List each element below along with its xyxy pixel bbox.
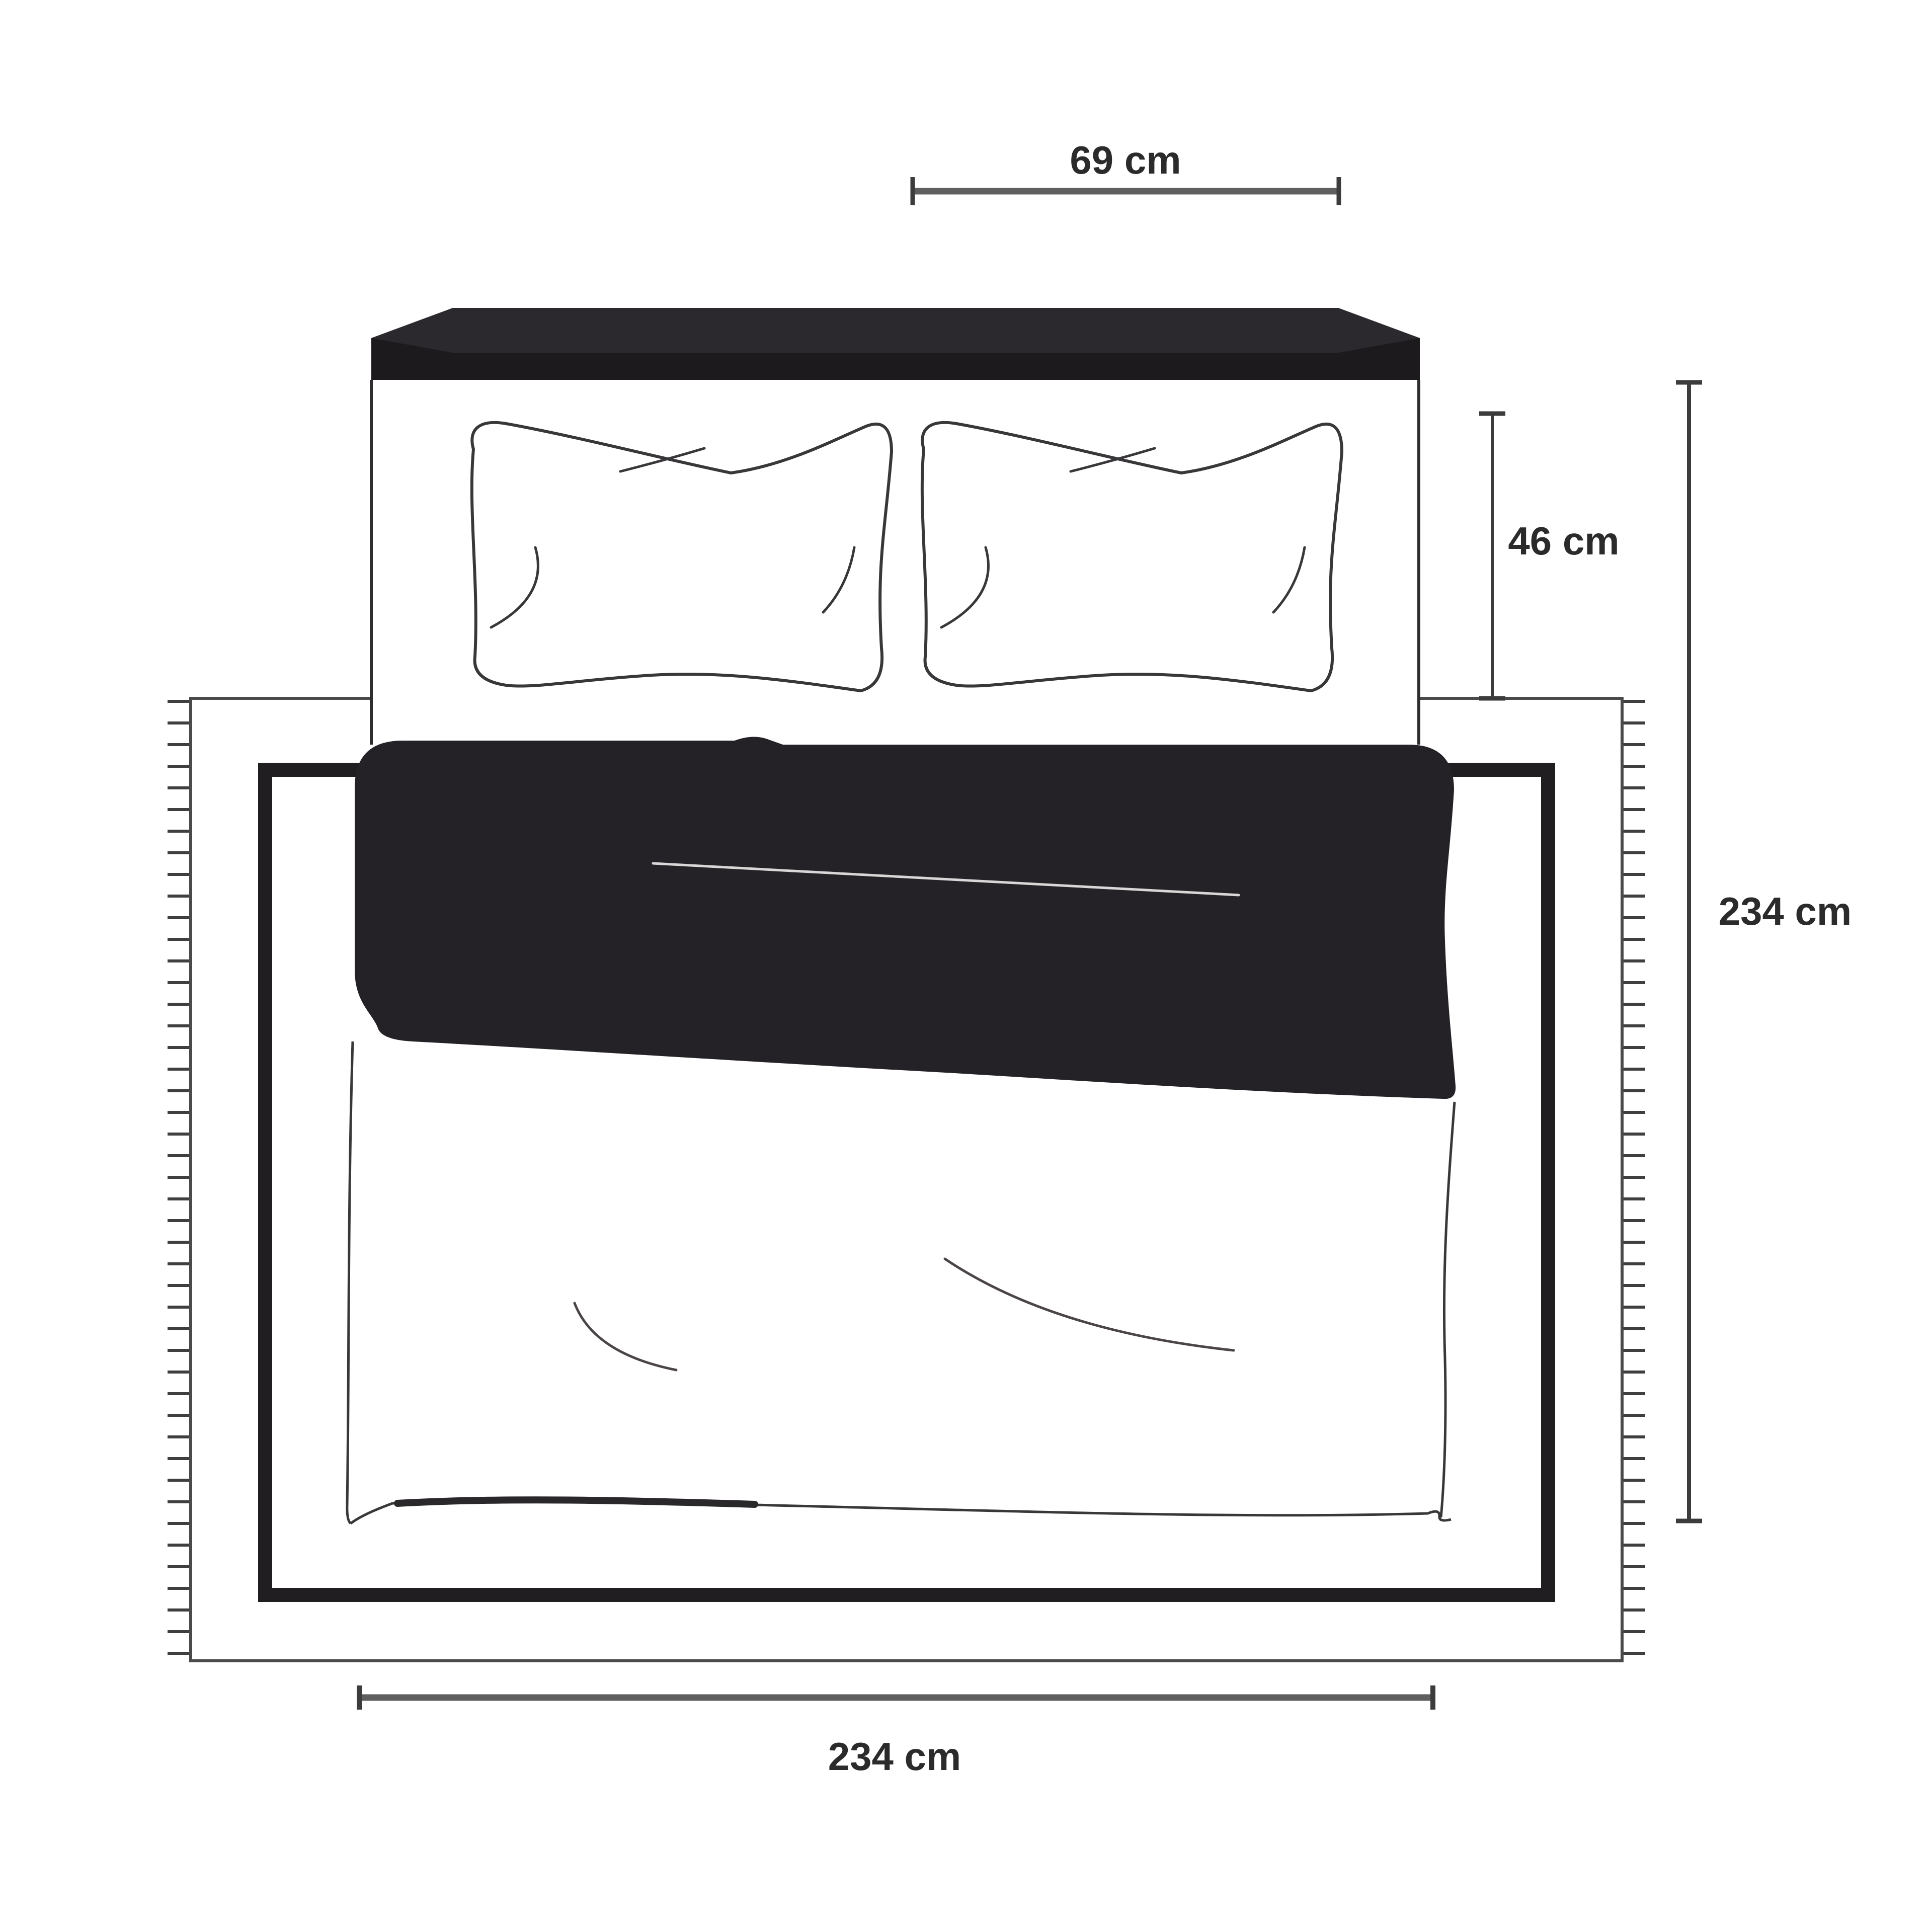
diagram-canvas: 69 cm 46 cm 234 cm 234 cm	[0, 0, 1932, 1932]
dimension-pillow-height: 46 cm	[1479, 414, 1620, 698]
pillow-left	[472, 423, 892, 691]
pillow-outline	[472, 423, 892, 691]
duvet	[355, 737, 1456, 1099]
dim-label-pillow-width: 69 cm	[1070, 138, 1181, 182]
dimension-bed-length: 234 cm	[1676, 382, 1852, 1521]
dimension-pillow-width: 69 cm	[913, 138, 1339, 205]
headboard	[371, 308, 1420, 380]
dim-label-bed-length: 234 cm	[1719, 889, 1852, 933]
dim-label-bed-width: 234 cm	[828, 1734, 961, 1779]
sheet-fill	[353, 1034, 1455, 1520]
bed-dimensions-diagram: 69 cm 46 cm 234 cm 234 cm	[0, 0, 1932, 1932]
pillow-right	[922, 423, 1342, 691]
duvet-body	[355, 737, 1456, 1099]
dimension-bed-width: 234 cm	[359, 1685, 1433, 1779]
dim-label-pillow-height: 46 cm	[1508, 519, 1619, 563]
sheet	[347, 1034, 1455, 1523]
headboard-top-face	[371, 308, 1420, 353]
